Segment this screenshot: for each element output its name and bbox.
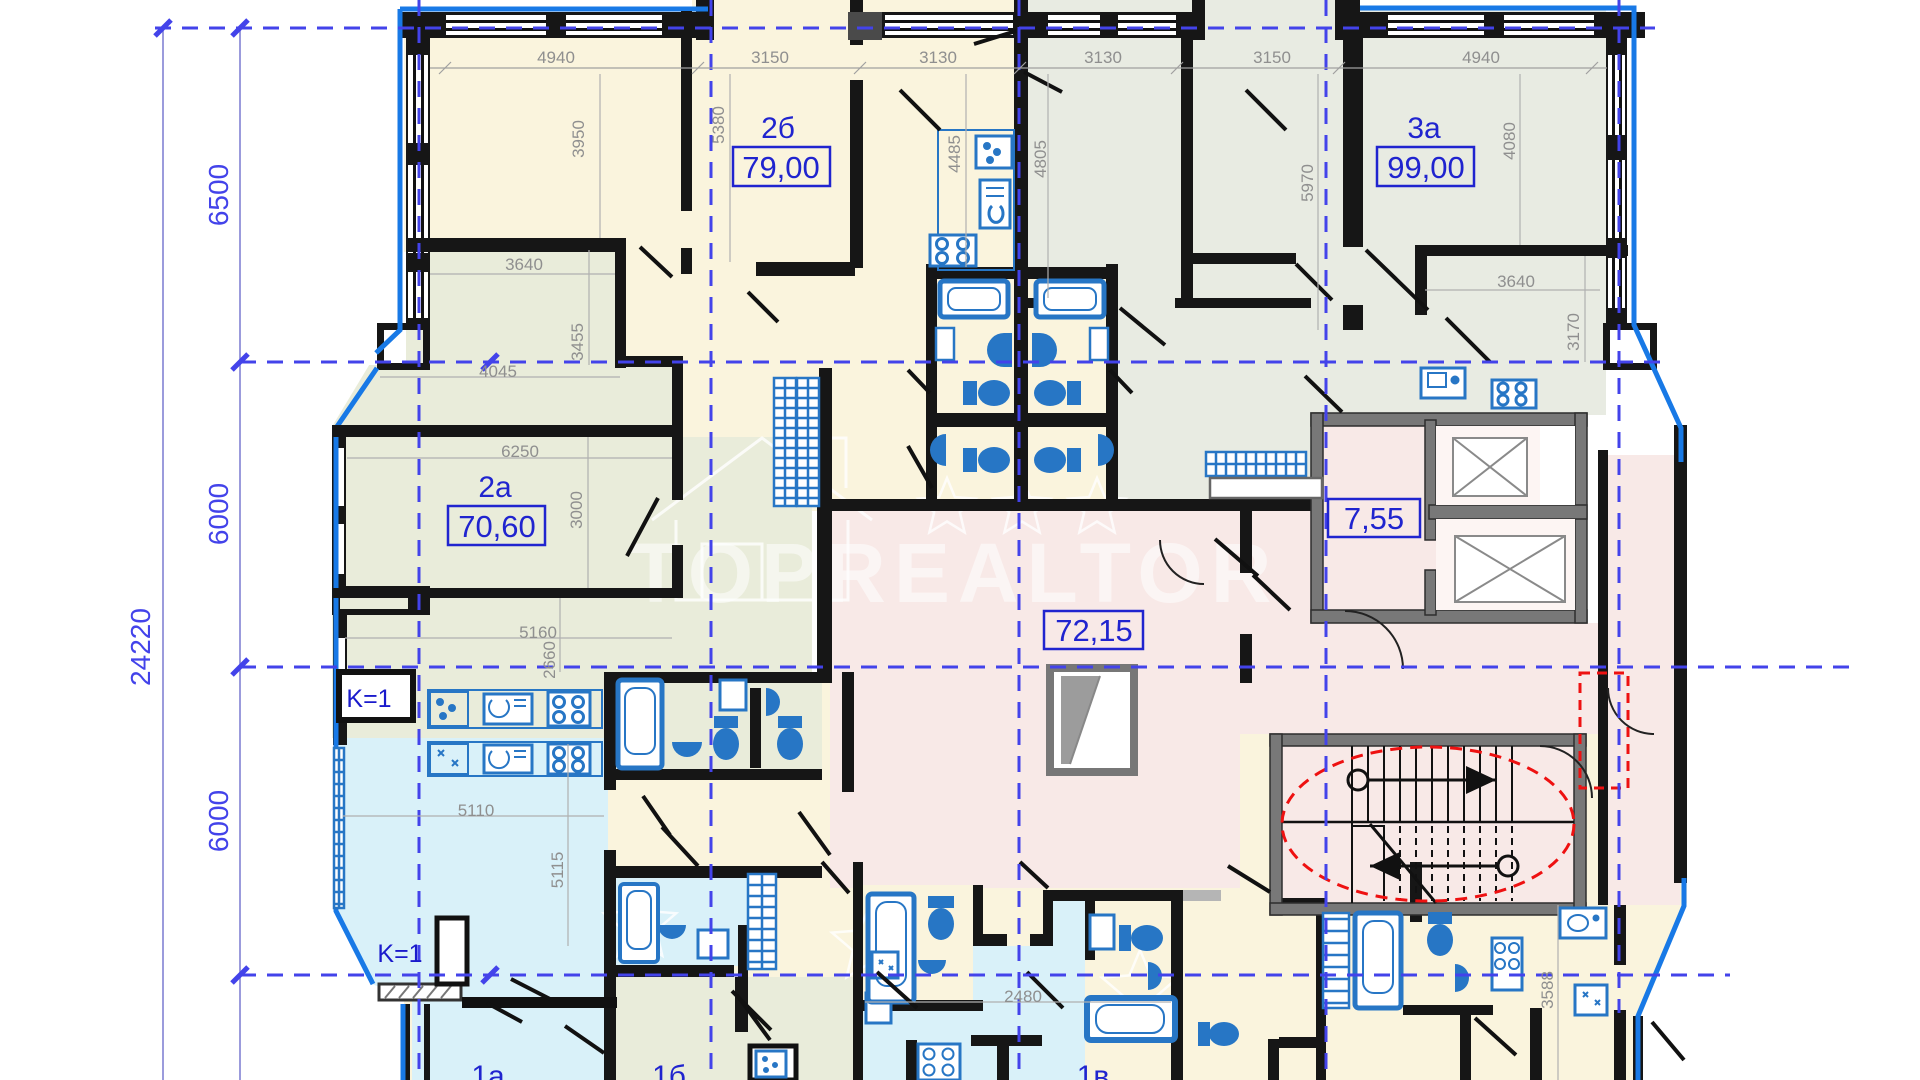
svg-text:4940: 4940	[537, 48, 575, 67]
svg-text:72,15: 72,15	[1055, 613, 1133, 648]
svg-text:3130: 3130	[1084, 48, 1122, 67]
svg-text:4080: 4080	[1500, 122, 1519, 160]
svg-text:3588: 3588	[1538, 971, 1557, 1009]
svg-text:2а: 2а	[478, 471, 512, 504]
svg-text:3а: 3а	[1407, 112, 1441, 145]
svg-text:5970: 5970	[1298, 164, 1317, 202]
svg-text:4940: 4940	[1462, 48, 1500, 67]
svg-text:99,00: 99,00	[1387, 150, 1465, 185]
svg-text:TOPREALTOR: TOPREALTOR	[630, 526, 1279, 620]
svg-text:1б: 1б	[652, 1060, 686, 1080]
svg-text:4045: 4045	[479, 362, 517, 381]
svg-text:1а: 1а	[471, 1060, 505, 1080]
svg-text:5115: 5115	[548, 852, 567, 889]
svg-text:3000: 3000	[567, 491, 586, 529]
svg-text:24220: 24220	[125, 608, 156, 686]
svg-text:K=1: K=1	[346, 685, 391, 713]
svg-text:79,00: 79,00	[742, 150, 820, 185]
svg-text:K=1: K=1	[377, 940, 422, 968]
svg-text:6000: 6000	[203, 790, 234, 852]
svg-text:6250: 6250	[501, 442, 539, 461]
svg-text:5380: 5380	[709, 106, 728, 144]
svg-text:6500: 6500	[203, 164, 234, 226]
svg-text:5110: 5110	[458, 801, 495, 820]
svg-text:2660: 2660	[540, 641, 559, 679]
svg-text:2480: 2480	[1004, 987, 1042, 1006]
svg-text:70,60: 70,60	[458, 509, 536, 544]
svg-text:3950: 3950	[569, 120, 588, 158]
svg-text:4805: 4805	[1031, 140, 1050, 178]
svg-text:3170: 3170	[1564, 313, 1583, 351]
svg-text:3150: 3150	[751, 48, 789, 67]
svg-text:3150: 3150	[1253, 48, 1291, 67]
svg-text:2б: 2б	[761, 112, 795, 145]
svg-text:5160: 5160	[519, 623, 557, 642]
svg-text:6000: 6000	[203, 483, 234, 545]
svg-text:4485: 4485	[945, 135, 964, 173]
svg-text:3640: 3640	[505, 255, 543, 274]
svg-text:3130: 3130	[919, 48, 957, 67]
svg-text:3640: 3640	[1497, 272, 1535, 291]
svg-text:3455: 3455	[568, 323, 587, 361]
svg-text:7,55: 7,55	[1344, 501, 1404, 536]
svg-text:1в: 1в	[1077, 1060, 1110, 1080]
